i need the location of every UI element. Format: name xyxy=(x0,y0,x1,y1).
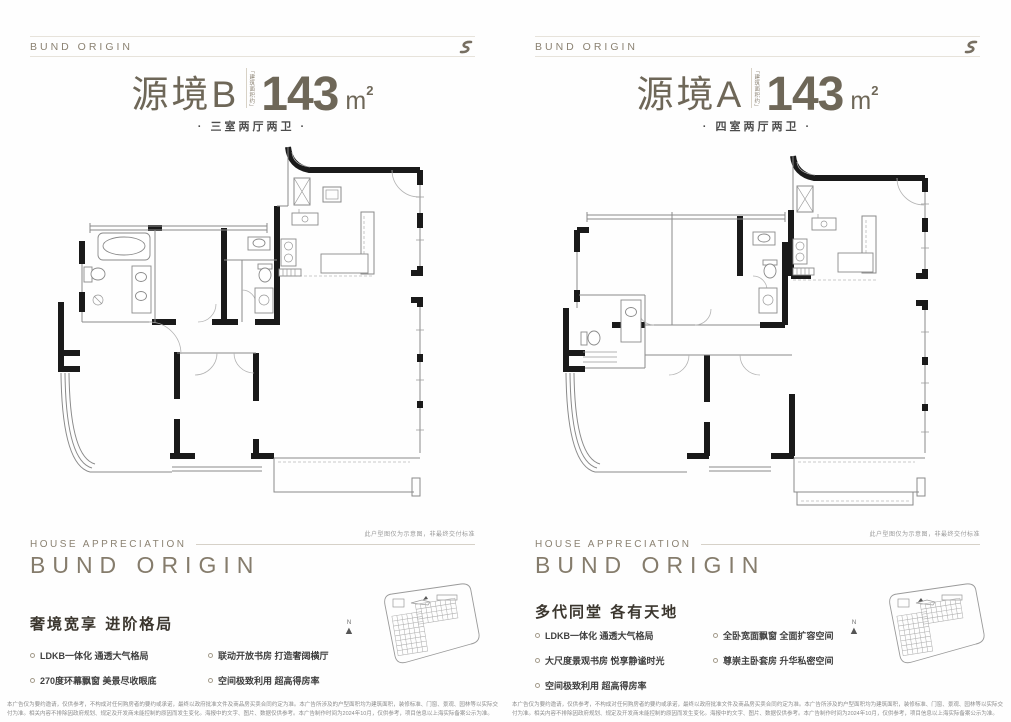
list-item-label: LDKB一体化 通透大气格局 xyxy=(545,629,654,642)
area-exponent: 2 xyxy=(366,83,373,98)
brand-bar: BUND ORIGIN xyxy=(30,36,475,57)
ring-bullet-icon xyxy=(713,633,718,638)
list-item: LDKB一体化 通透大气格局 xyxy=(535,629,707,642)
list-item: 大尺度景观书房 悦享静谧时光 xyxy=(535,654,707,667)
area-prefix-note: 「建筑面积约」 xyxy=(246,68,254,108)
footer-brand-wordmark: BUND ORIGIN xyxy=(30,552,260,579)
selling-point-list: LDKB一体化 通透大气格局 全卧宽面飘窗 全面扩容空间 大尺度景观书房 悦享静… xyxy=(535,629,865,692)
brand-bar: BUND ORIGIN xyxy=(535,36,980,57)
list-item-label: 空间极致利用 超高得房率 xyxy=(218,674,320,687)
ring-bullet-icon xyxy=(208,653,213,658)
layout-tag: · 四室两厅两卫 · xyxy=(505,118,1010,134)
area-exponent: 2 xyxy=(871,83,878,98)
footer-eyebrow: HOUSE APPRECIATION xyxy=(30,539,187,550)
area-unit: m2 xyxy=(345,84,373,116)
ring-bullet-icon xyxy=(713,658,718,663)
list-item: LDKB一体化 通透大气格局 xyxy=(30,649,202,662)
s-monogram-icon xyxy=(457,40,475,54)
site-plan-map xyxy=(361,579,491,681)
selling-point-headline: 多代同堂 各有天地 xyxy=(535,601,678,622)
list-item-label: 空间极致利用 超高得房率 xyxy=(545,679,647,692)
selling-point-headline: 奢境宽享 进阶格局 xyxy=(30,613,173,634)
floor-plan-b-drawing xyxy=(52,140,452,530)
footer-rule xyxy=(701,544,980,545)
brand-wordmark: BUND ORIGIN xyxy=(535,41,638,53)
floor-plan-b xyxy=(52,140,452,530)
s-monogram-icon xyxy=(962,40,980,54)
list-item-label: 联动开放书房 打造奢阔横厅 xyxy=(218,649,329,662)
footer-rule xyxy=(196,544,475,545)
ring-bullet-icon xyxy=(208,678,213,683)
compass-arrow-icon: ▲ xyxy=(846,626,862,637)
legal-disclaimer: 本广告仅为要约邀请，仅供参考，不构成对任何购房者的要约或承诺，最终以政府批准文件… xyxy=(512,701,1003,719)
legal-disclaimer: 本广告仅为要约邀请，仅供参考，不构成对任何购房者的要约或承诺，最终以政府批准文件… xyxy=(7,701,498,719)
unit-name: 源境A xyxy=(637,76,745,116)
list-item-label: 尊崇主卧套房 升华私密空间 xyxy=(723,654,834,667)
area-value: 143 xyxy=(766,74,843,116)
list-item-label: 全卧宽面飘窗 全面扩容空间 xyxy=(723,629,834,642)
floor-plan-a xyxy=(557,140,957,530)
list-item: 空间极致利用 超高得房率 xyxy=(208,674,360,687)
compass: N ▲ xyxy=(341,620,357,637)
list-item-label: LDKB一体化 通透大气格局 xyxy=(40,649,149,662)
compass: N ▲ xyxy=(846,620,862,637)
list-item: 270度环幕飘窗 美景尽收眼底 xyxy=(30,674,202,687)
footer-eyebrow: HOUSE APPRECIATION xyxy=(535,539,692,550)
list-item: 尊崇主卧套房 升华私密空间 xyxy=(713,654,865,667)
plan-disclaimer-note: 此户型图仅为示意图，非最终交付标准 xyxy=(364,529,475,538)
ring-bullet-icon xyxy=(535,658,540,663)
site-marker xyxy=(423,596,428,600)
unit-name: 源境B xyxy=(132,76,240,116)
footer-eyebrow-row: HOUSE APPRECIATION xyxy=(30,539,475,550)
ring-bullet-icon xyxy=(30,653,35,658)
area-value: 143 xyxy=(261,74,338,116)
list-item: 空间极致利用 超高得房率 xyxy=(535,679,707,692)
panel-unit-b: BUND ORIGIN 源境B 「建筑面积约」 143 m2 · 三室两厅两卫 … xyxy=(0,0,505,722)
list-item-label: 270度环幕飘窗 美景尽收眼底 xyxy=(40,674,157,687)
list-item-label: 大尺度景观书房 悦享静谧时光 xyxy=(545,654,665,667)
ring-bullet-icon xyxy=(30,678,35,683)
brochure-page: BUND ORIGIN 源境B 「建筑面积约」 143 m2 · 三室两厅两卫 … xyxy=(0,0,1011,722)
area-prefix-note: 「建筑面积约」 xyxy=(751,68,759,108)
panel-unit-a: BUND ORIGIN 源境A 「建筑面积约」 143 m2 · 四室两厅两卫 … xyxy=(505,0,1010,722)
list-item: 全卧宽面飘窗 全面扩容空间 xyxy=(713,629,865,642)
area-unit: m2 xyxy=(850,84,878,116)
ring-bullet-icon xyxy=(535,633,540,638)
brand-wordmark: BUND ORIGIN xyxy=(30,41,133,53)
compass-arrow-icon: ▲ xyxy=(341,626,357,637)
footer-eyebrow-row: HOUSE APPRECIATION xyxy=(535,539,980,550)
title-row: 源境B 「建筑面积约」 143 m2 xyxy=(0,64,505,116)
list-item: 联动开放书房 打造奢阔横厅 xyxy=(208,649,360,662)
ring-bullet-icon xyxy=(535,683,540,688)
plan-disclaimer-note: 此户型图仅为示意图，非最终交付标准 xyxy=(869,529,980,538)
footer-brand-wordmark: BUND ORIGIN xyxy=(535,552,765,579)
title-row: 源境A 「建筑面积约」 143 m2 xyxy=(505,64,1010,116)
site-plan-map xyxy=(866,579,996,681)
selling-point-list: LDKB一体化 通透大气格局 联动开放书房 打造奢阔横厅 270度环幕飘窗 美景… xyxy=(30,649,360,687)
layout-tag: · 三室两厅两卫 · xyxy=(0,118,505,134)
floor-plan-a-drawing xyxy=(557,140,957,530)
